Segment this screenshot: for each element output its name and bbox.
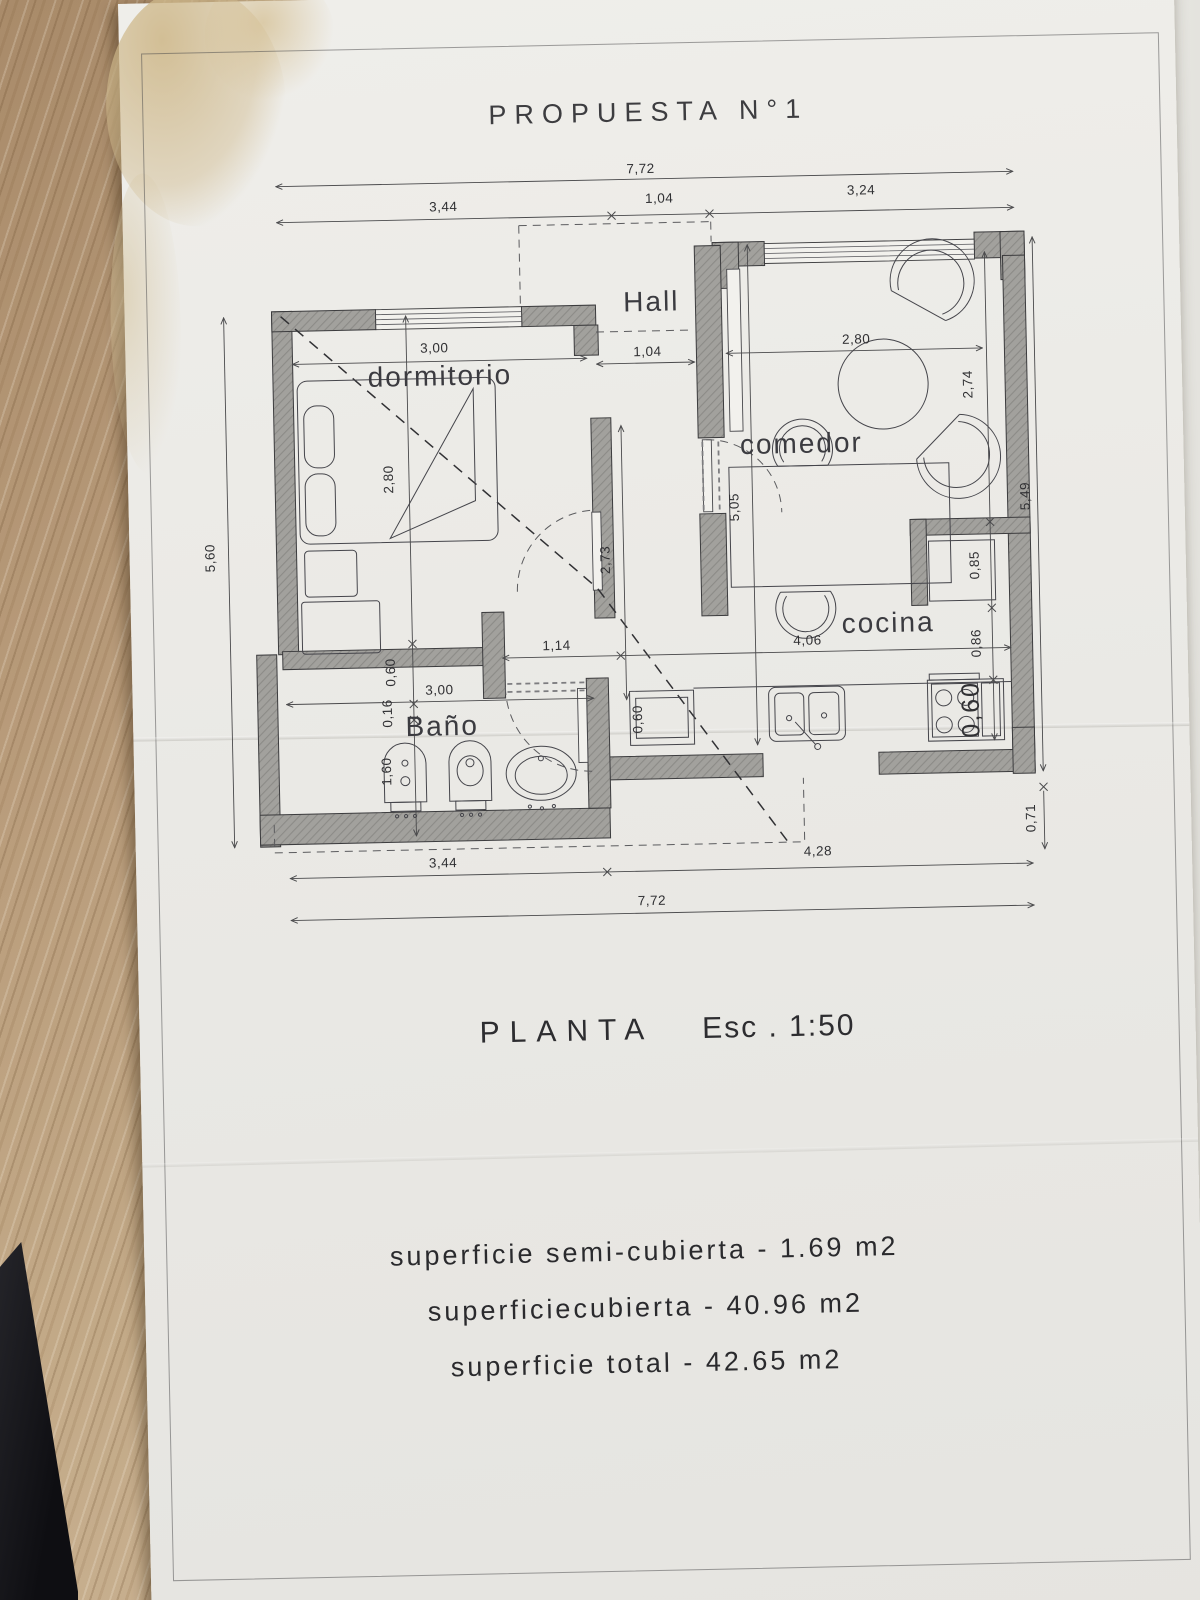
dim-top-right: 3,24 — [847, 182, 876, 198]
dim-porch: 0,71 — [1023, 804, 1039, 833]
kitchen-sink — [768, 686, 845, 751]
dim-closet: 0,60 — [383, 658, 399, 687]
photo-of-floor-plan-sheet: PROPUESTA N°1 — [0, 0, 1200, 1600]
bathroom-sink — [506, 746, 577, 811]
surface-areas: superficie semi-cubierta - 1.69 m2 super… — [116, 1212, 1175, 1402]
comedor-window — [764, 239, 974, 263]
room-label-cocina: cocina — [841, 606, 935, 639]
dim-dorm-width: 3,00 — [420, 340, 449, 356]
dim-living-height: 5,05 — [726, 493, 742, 522]
dim-top-total: 7,72 — [626, 161, 655, 177]
dim-bano-width: 3,00 — [425, 682, 454, 698]
dim-right-total: 5,49 — [1017, 482, 1033, 511]
dim-window-height: 2,74 — [960, 370, 976, 399]
dim-fridge: 0,85 — [967, 551, 983, 580]
dim-bottom-total: 7,72 — [638, 893, 667, 909]
dim-left-total: 5,60 — [202, 544, 218, 573]
blueprint-paper: PROPUESTA N°1 — [118, 0, 1200, 1600]
dim-table-width: 2,80 — [842, 331, 871, 347]
dim-counter: 0,86 — [968, 629, 984, 658]
floor-plan-drawing: 7,72 3,44 1,04 3,24 1,04 3,00 2,80 0,60 … — [175, 126, 1062, 954]
dim-hall-inner: 1,04 — [633, 344, 662, 360]
dim-corridor: 2,73 — [597, 546, 613, 575]
round-table — [837, 338, 929, 430]
dim-bottom-left: 3,44 — [429, 855, 458, 871]
door-swing-arc — [516, 510, 598, 592]
armchair — [909, 406, 1018, 515]
room-label-comedor: comedor — [740, 427, 864, 461]
dim-kitchen-width: 4,06 — [793, 632, 822, 648]
room-label-hall: Hall — [623, 285, 680, 317]
dim-laundry: 0,60 — [630, 705, 646, 734]
dim-pass: 1,14 — [542, 638, 571, 654]
comedor-door-leaf — [702, 440, 713, 512]
room-label-dormitorio: dormitorio — [367, 359, 512, 393]
dim-bano-height: 1,60 — [379, 757, 395, 786]
dim-stove: 0,60 — [956, 681, 985, 738]
caption-planta: PLANTA — [479, 1013, 654, 1051]
bano-door-leaf — [577, 688, 588, 762]
dim-dorm-height: 2,80 — [381, 465, 397, 494]
caption-scale: Esc . 1:50 — [702, 1009, 856, 1046]
dim-bottom-right: 4,28 — [804, 843, 833, 859]
dim-top-left: 3,44 — [429, 199, 458, 215]
dim-top-hall: 1,04 — [645, 190, 674, 206]
fridge — [928, 540, 995, 601]
toilet — [449, 740, 493, 816]
dim-wall: 0,16 — [380, 699, 396, 728]
dormitorio-window — [375, 307, 521, 330]
glass-door-leaf — [727, 269, 743, 431]
kitchen-counter — [629, 681, 1012, 745]
room-label-bano: Baño — [405, 710, 479, 743]
